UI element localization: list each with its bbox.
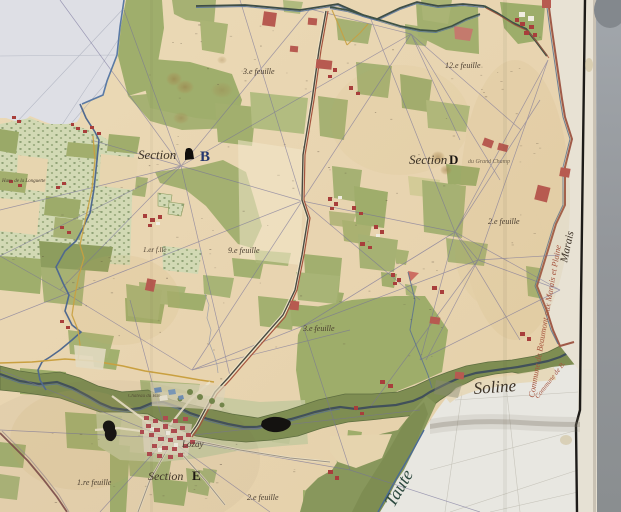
svg-text:D: D [449, 152, 458, 167]
svg-text:B: B [200, 149, 210, 165]
svg-text:Ham. de la Longuette: Ham. de la Longuette [1, 179, 46, 184]
svg-text:3.e feuille: 3.e feuille [242, 67, 275, 76]
svg-text:Section: Section [409, 152, 447, 167]
svg-text:1.er f.lle: 1.er f.lle [143, 246, 167, 254]
svg-text:2.e feuille: 2.e feuille [247, 493, 279, 502]
svg-text:3.e feuille: 3.e feuille [302, 324, 335, 333]
svg-text:Soline: Soline [473, 376, 517, 398]
svg-text:Section: Section [138, 147, 176, 162]
svg-text:9.e feuille: 9.e feuille [228, 246, 260, 255]
svg-text:12.e feuille: 12.e feuille [445, 61, 481, 70]
